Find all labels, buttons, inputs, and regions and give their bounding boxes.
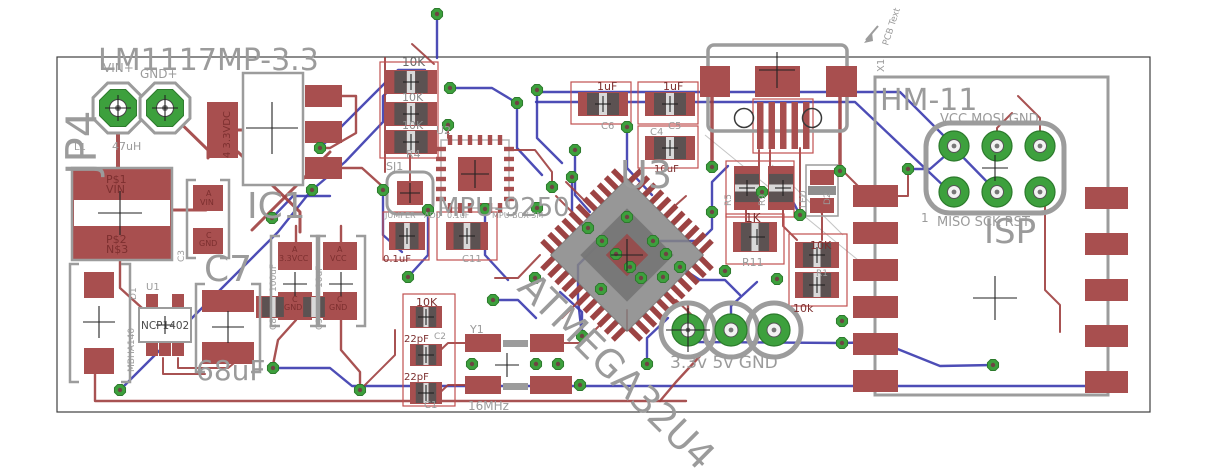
hm11-castellation-left <box>853 185 898 207</box>
label-isp: ISP <box>984 212 1036 252</box>
pad-text-ns3: N$3 <box>106 243 128 256</box>
note-ad0: AD0 <box>424 211 441 220</box>
pad-text-c9a: A <box>337 245 343 254</box>
via-hole <box>448 86 452 90</box>
via <box>306 184 317 195</box>
qfn-pad <box>504 147 514 151</box>
label-sj1: SJ1 <box>386 160 403 173</box>
label-r9: R9 <box>758 194 768 206</box>
via-hole <box>628 265 632 269</box>
value-r3: 10K <box>810 239 832 252</box>
label-r1: R1 <box>816 269 828 279</box>
value-c6: 1uF <box>597 80 617 93</box>
via-hole <box>570 175 574 179</box>
via-hole <box>310 188 314 192</box>
via-hole <box>639 276 643 280</box>
via <box>569 144 580 155</box>
via <box>566 171 577 182</box>
label-c11: C11 <box>462 254 482 265</box>
isp-pad-miso <box>939 177 969 207</box>
pad-text-c9v: VCC <box>330 254 347 263</box>
pad-text-vin: VIN <box>106 183 125 196</box>
u1-pad <box>172 294 184 309</box>
qfn-pad <box>498 135 502 145</box>
via-hole <box>710 210 714 214</box>
qfn-pad <box>458 135 462 145</box>
led-pad <box>810 170 834 185</box>
isp-pad-vcc <box>939 131 969 161</box>
y1-bar <box>503 340 528 347</box>
via-hole <box>599 287 603 291</box>
qfn-pad <box>488 135 492 145</box>
pcb-svg: LM1117MP-3.3JP4VIN+GND+L147uHP$1VINP$2N$… <box>0 0 1217 471</box>
qfn-pad <box>436 157 446 161</box>
via-hole <box>798 213 802 217</box>
via-hole <box>578 383 582 387</box>
via <box>511 97 522 108</box>
label-c4: C4 <box>650 127 663 138</box>
label-c9: C9 <box>315 318 325 330</box>
via <box>836 315 847 326</box>
usb-alignment-hole <box>735 109 754 128</box>
usb-shield-pad <box>826 66 857 97</box>
isp-pad-gnd <box>1025 131 1055 161</box>
qfn-pad <box>504 187 514 191</box>
pcb-text-arrow-head <box>864 32 873 43</box>
usb-pin <box>769 102 776 149</box>
value-c7: 68uF <box>196 354 265 387</box>
c7-pad-top <box>202 290 254 312</box>
isp-pad-vcc-drill <box>952 144 957 149</box>
via <box>902 163 913 174</box>
via-hole <box>573 148 577 152</box>
via-hole <box>625 125 629 129</box>
label-x1: X1 <box>876 59 887 72</box>
trace <box>450 88 517 103</box>
part-ncp1402: NCP1402 <box>141 320 189 332</box>
pullup-resistor-part <box>303 297 311 317</box>
via-hole <box>515 101 519 105</box>
label-l1: L1 <box>74 142 86 153</box>
part-mbha140: MBHA140 <box>127 328 137 372</box>
hm11-castellation-right <box>1085 279 1128 301</box>
trace <box>360 330 395 390</box>
via <box>595 283 606 294</box>
qfn-pad <box>436 167 446 171</box>
label-d1: D1 <box>129 287 139 300</box>
label-u1: U1 <box>146 282 160 293</box>
via-hole <box>651 239 655 243</box>
via <box>466 358 477 369</box>
lm1117-pad3 <box>305 157 342 179</box>
pad-text-c8a: A <box>292 245 298 254</box>
label-gnd-plus: GND+ <box>140 67 178 81</box>
value-c12: 0.1uF <box>383 254 411 265</box>
via-hole <box>491 298 495 302</box>
via-hole <box>906 167 910 171</box>
hm11-castellation-left <box>853 222 898 244</box>
label-c5: C5 <box>668 121 681 132</box>
via-hole <box>661 275 665 279</box>
label-u2: U2 <box>436 124 451 137</box>
via <box>706 161 717 172</box>
value-c9: 10uF <box>315 266 325 288</box>
via <box>621 121 632 132</box>
usb-pin <box>780 102 787 149</box>
isp-pad-sck-drill <box>995 190 1000 195</box>
via-hole <box>358 388 362 392</box>
via-hole <box>838 169 842 173</box>
via <box>719 265 730 276</box>
note-box: MPU-BOX-3M <box>492 211 543 220</box>
via <box>574 379 585 390</box>
label-isp-top-row: VCC MOSI GND <box>940 112 1039 127</box>
note-jumper: JUMPER <box>384 211 416 220</box>
via <box>706 206 717 217</box>
hm11-castellation-left <box>853 333 898 355</box>
trace <box>342 168 382 186</box>
note-01uf: 0.1uF <box>447 211 470 220</box>
pad-text-c9g: GND <box>329 303 347 312</box>
value-y1: 16MHz <box>468 399 509 413</box>
trace <box>1045 206 1060 332</box>
pcb-editor-canvas: LM1117MP-3.3JP4VIN+GND+L147uHP$1VINP$2N$… <box>0 0 1217 471</box>
via-hole <box>600 239 604 243</box>
via-hole <box>710 165 714 169</box>
via <box>377 184 388 195</box>
usb-pin <box>757 102 764 149</box>
isp-pad-rst-drill <box>1038 190 1043 195</box>
via-hole <box>470 362 474 366</box>
pad-text-c8g: GND <box>284 303 302 312</box>
trace <box>512 150 552 187</box>
qfn-pad <box>468 135 472 145</box>
via <box>621 211 632 222</box>
via-hole <box>625 215 629 219</box>
origin-cross <box>666 308 710 352</box>
hm11-castellation-right <box>1085 325 1128 347</box>
via <box>624 261 635 272</box>
resistor-r9-part <box>769 174 793 185</box>
lm1117-pad1 <box>305 85 342 107</box>
label-vin-plus: VIN+ <box>103 61 134 75</box>
via-hole <box>381 188 385 192</box>
pad-text-c3vin: VIN <box>200 198 214 207</box>
qfn-pad <box>504 177 514 181</box>
value-c2: 22pF <box>404 334 429 345</box>
via <box>836 337 847 348</box>
header-pad-gnd-drill <box>772 328 777 333</box>
lm1117-pad2 <box>305 121 342 143</box>
via <box>610 248 621 259</box>
via-hole <box>406 275 410 279</box>
label-power-header: 3.3v 5v GND <box>670 353 778 373</box>
note-pcb-text: PCB Text <box>881 6 903 47</box>
via <box>834 165 845 176</box>
label-d2: D2 <box>823 192 833 205</box>
isp-pad-mosi <box>982 131 1012 161</box>
via-hole <box>586 226 590 230</box>
via-hole <box>118 388 122 392</box>
via <box>267 362 278 373</box>
u1-pad <box>172 341 184 356</box>
pullup-resistor-part <box>262 297 270 317</box>
via-hole <box>534 362 538 366</box>
u1-pad <box>146 341 158 356</box>
hm11-castellation-left <box>853 370 898 392</box>
label-c7: C7 <box>204 249 252 290</box>
label-c8: C8 <box>269 318 279 330</box>
via <box>647 235 658 246</box>
via-hole <box>775 277 779 281</box>
y1-pad <box>530 376 572 394</box>
via-hole <box>271 366 275 370</box>
via <box>444 82 455 93</box>
d1-pad-top <box>84 272 114 298</box>
header-pad-gnd <box>758 314 790 346</box>
header-pad-5v-drill <box>729 328 734 333</box>
qfn-pad <box>436 177 446 181</box>
via <box>531 84 542 95</box>
via-hole <box>840 319 844 323</box>
value-l1: 47uH <box>112 140 141 153</box>
value-c1: 22pF <box>404 372 429 383</box>
via-hole <box>645 362 649 366</box>
value-r1: 10k <box>793 302 814 315</box>
via <box>114 384 125 395</box>
label-r11: R11 <box>742 256 764 269</box>
via-hole <box>550 185 554 189</box>
via <box>546 181 557 192</box>
lm1117-body <box>243 73 303 185</box>
d1-pad-bottom <box>84 348 114 374</box>
isp-pad-miso-drill <box>952 190 957 195</box>
label-c3: C3 <box>177 250 187 262</box>
u1-pad <box>159 341 171 356</box>
hm11-castellation-left <box>853 259 898 281</box>
via <box>530 358 541 369</box>
value-r-10k-2: 10K <box>402 91 424 104</box>
label-pin1: 1 <box>921 211 929 225</box>
via-hole <box>535 88 539 92</box>
value-c5: 1uF <box>663 80 683 93</box>
header-pad-5v <box>715 314 747 346</box>
qfn-pad <box>436 147 446 151</box>
qfn-pad <box>478 135 482 145</box>
via <box>354 384 365 395</box>
origin-cross <box>83 306 115 338</box>
via <box>552 358 563 369</box>
pad-text-c3gnd: GND <box>199 239 217 248</box>
label-c6: C6 <box>601 121 614 132</box>
pullup-resistor-part <box>276 297 284 317</box>
label-ic1: IC1 <box>247 186 306 227</box>
via-hole <box>840 341 844 345</box>
value-r-10k-3: 10K <box>402 119 424 132</box>
y1-pad <box>465 376 501 394</box>
via-hole <box>318 146 322 150</box>
via <box>674 261 685 272</box>
u1-pad <box>146 294 158 309</box>
y1-pad <box>465 334 501 352</box>
value-r11: 1K <box>745 211 762 225</box>
isp-pad-sck <box>982 177 1012 207</box>
via <box>771 273 782 284</box>
via <box>402 271 413 282</box>
value-r-reset: 10K <box>416 296 438 309</box>
label-c1: C1 <box>424 400 437 411</box>
hm11-castellation-right <box>1085 187 1128 209</box>
origin-cross <box>212 311 244 343</box>
usb-shield-pad <box>700 66 730 97</box>
via <box>794 209 805 220</box>
label-y1: Y1 <box>469 323 484 336</box>
isp-pad-mosi-drill <box>995 144 1000 149</box>
qfn-pad <box>436 187 446 191</box>
y1-bar <box>503 383 528 390</box>
via-hole <box>664 252 668 256</box>
isp-pad-rst <box>1025 177 1055 207</box>
label-led: LED <box>799 190 809 208</box>
via <box>487 294 498 305</box>
resistor-r9-part <box>769 192 793 203</box>
via-hole <box>435 12 439 16</box>
via-hole <box>991 363 995 367</box>
value-r-10k-1: 10K <box>402 55 426 69</box>
qfn-pad <box>504 167 514 171</box>
value-c8: 100uF <box>269 264 279 292</box>
pad-text-c8v: 3.3VCC <box>279 254 309 263</box>
via-hole <box>760 190 764 194</box>
qfn-pad <box>504 157 514 161</box>
usb-pin <box>792 102 799 149</box>
via <box>660 248 671 259</box>
via-hole <box>556 362 560 366</box>
hm11-castellation-left <box>853 296 898 318</box>
hm11-castellation-right <box>1085 233 1128 255</box>
label-r4: R4 <box>406 148 421 161</box>
via <box>987 359 998 370</box>
via-hole <box>723 269 727 273</box>
via <box>657 271 668 282</box>
via <box>635 272 646 283</box>
hm11-castellation-right <box>1085 371 1128 393</box>
via <box>314 142 325 153</box>
origin-cross <box>495 353 519 377</box>
label-c2: C2 <box>434 332 446 342</box>
label-r5: R5 <box>724 194 734 206</box>
pad-text-33vdc: 4 3.3VDC <box>222 111 233 158</box>
via <box>596 235 607 246</box>
origin-cross <box>973 276 1017 320</box>
isp-pad-gnd-drill <box>1038 144 1043 149</box>
pad-text-c3a: A <box>206 189 212 198</box>
via <box>582 222 593 233</box>
label-u3: U3 <box>620 153 672 197</box>
via-hole <box>678 265 682 269</box>
via <box>431 8 442 19</box>
